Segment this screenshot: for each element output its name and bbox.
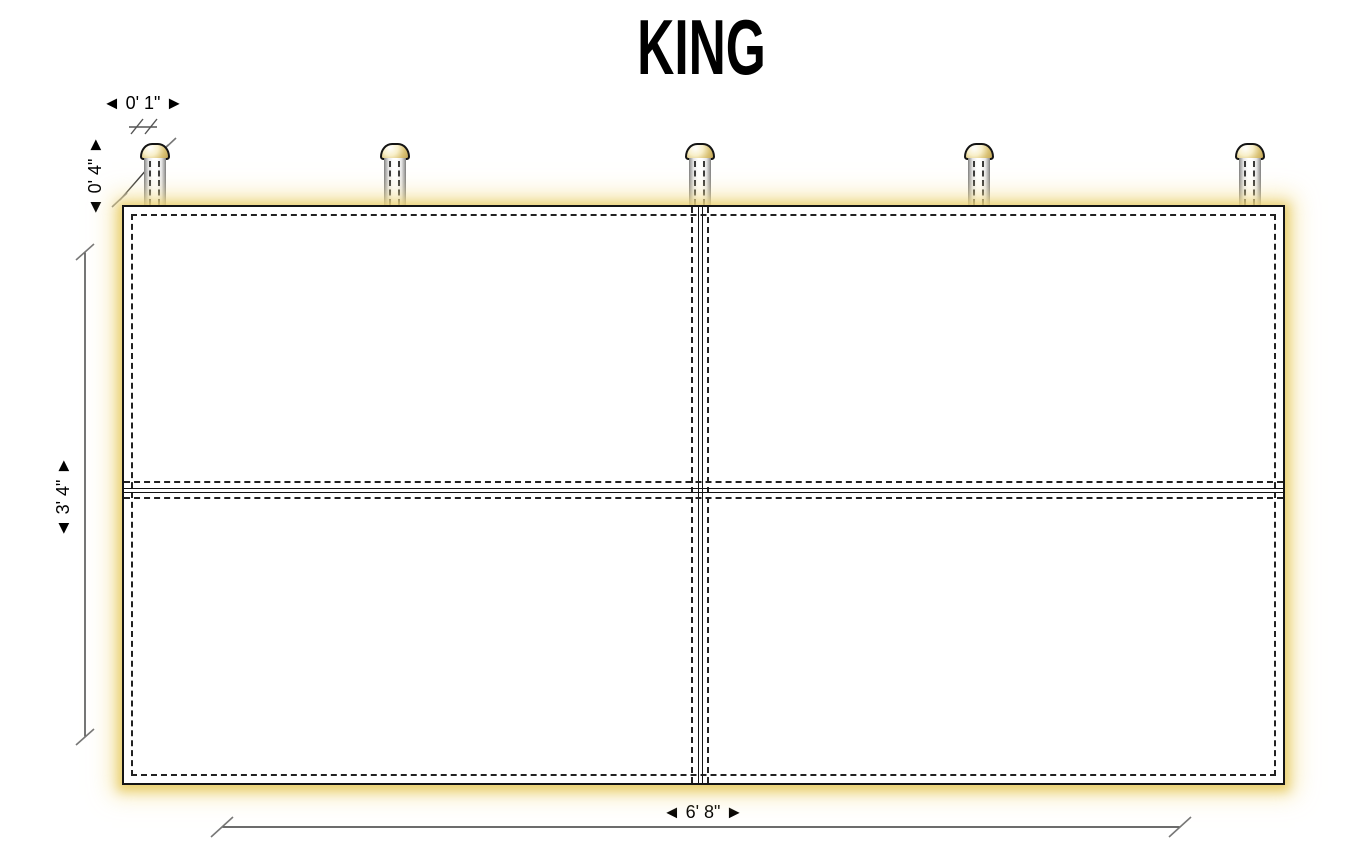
dimension-break-icon	[129, 119, 157, 134]
post-stitch-line	[982, 161, 984, 205]
bed-post	[685, 143, 715, 205]
post-shaft	[144, 158, 166, 205]
horizontal-seam-core	[124, 488, 1283, 493]
post-stitch-line	[694, 161, 696, 205]
post-shaft	[1239, 158, 1261, 205]
dimension-post-height: ◄ 0' 4" ►	[85, 134, 105, 218]
headboard-drawing-canvas: KING ◄ 0' 1" ► ◄ 0' 4" ► ◄ 3' 4" ►	[0, 0, 1352, 852]
post-shaft	[384, 158, 406, 205]
post-stitch-line	[703, 161, 705, 205]
headboard-panel	[122, 205, 1285, 785]
bed-post	[140, 143, 170, 205]
post-stitch-line	[158, 161, 160, 205]
post-stitch-line	[1253, 161, 1255, 205]
bed-post	[1235, 143, 1265, 205]
dimension-headboard-height: ◄ 3' 4" ►	[53, 455, 73, 539]
post-stitch-line	[389, 161, 391, 205]
dimension-headboard-width: ◄ 6' 8" ►	[643, 802, 763, 822]
horizontal-seam	[124, 481, 1283, 499]
bed-post	[380, 143, 410, 205]
headboard-height-dim-line	[76, 244, 94, 745]
bed-post	[964, 143, 994, 205]
dimension-post-diameter: ◄ 0' 1" ►	[83, 93, 203, 113]
post-stitch-line	[149, 161, 151, 205]
post-shaft	[689, 158, 711, 205]
post-stitch-line	[1244, 161, 1246, 205]
post-stitch-line	[398, 161, 400, 205]
post-shaft	[968, 158, 990, 205]
post-stitch-line	[973, 161, 975, 205]
